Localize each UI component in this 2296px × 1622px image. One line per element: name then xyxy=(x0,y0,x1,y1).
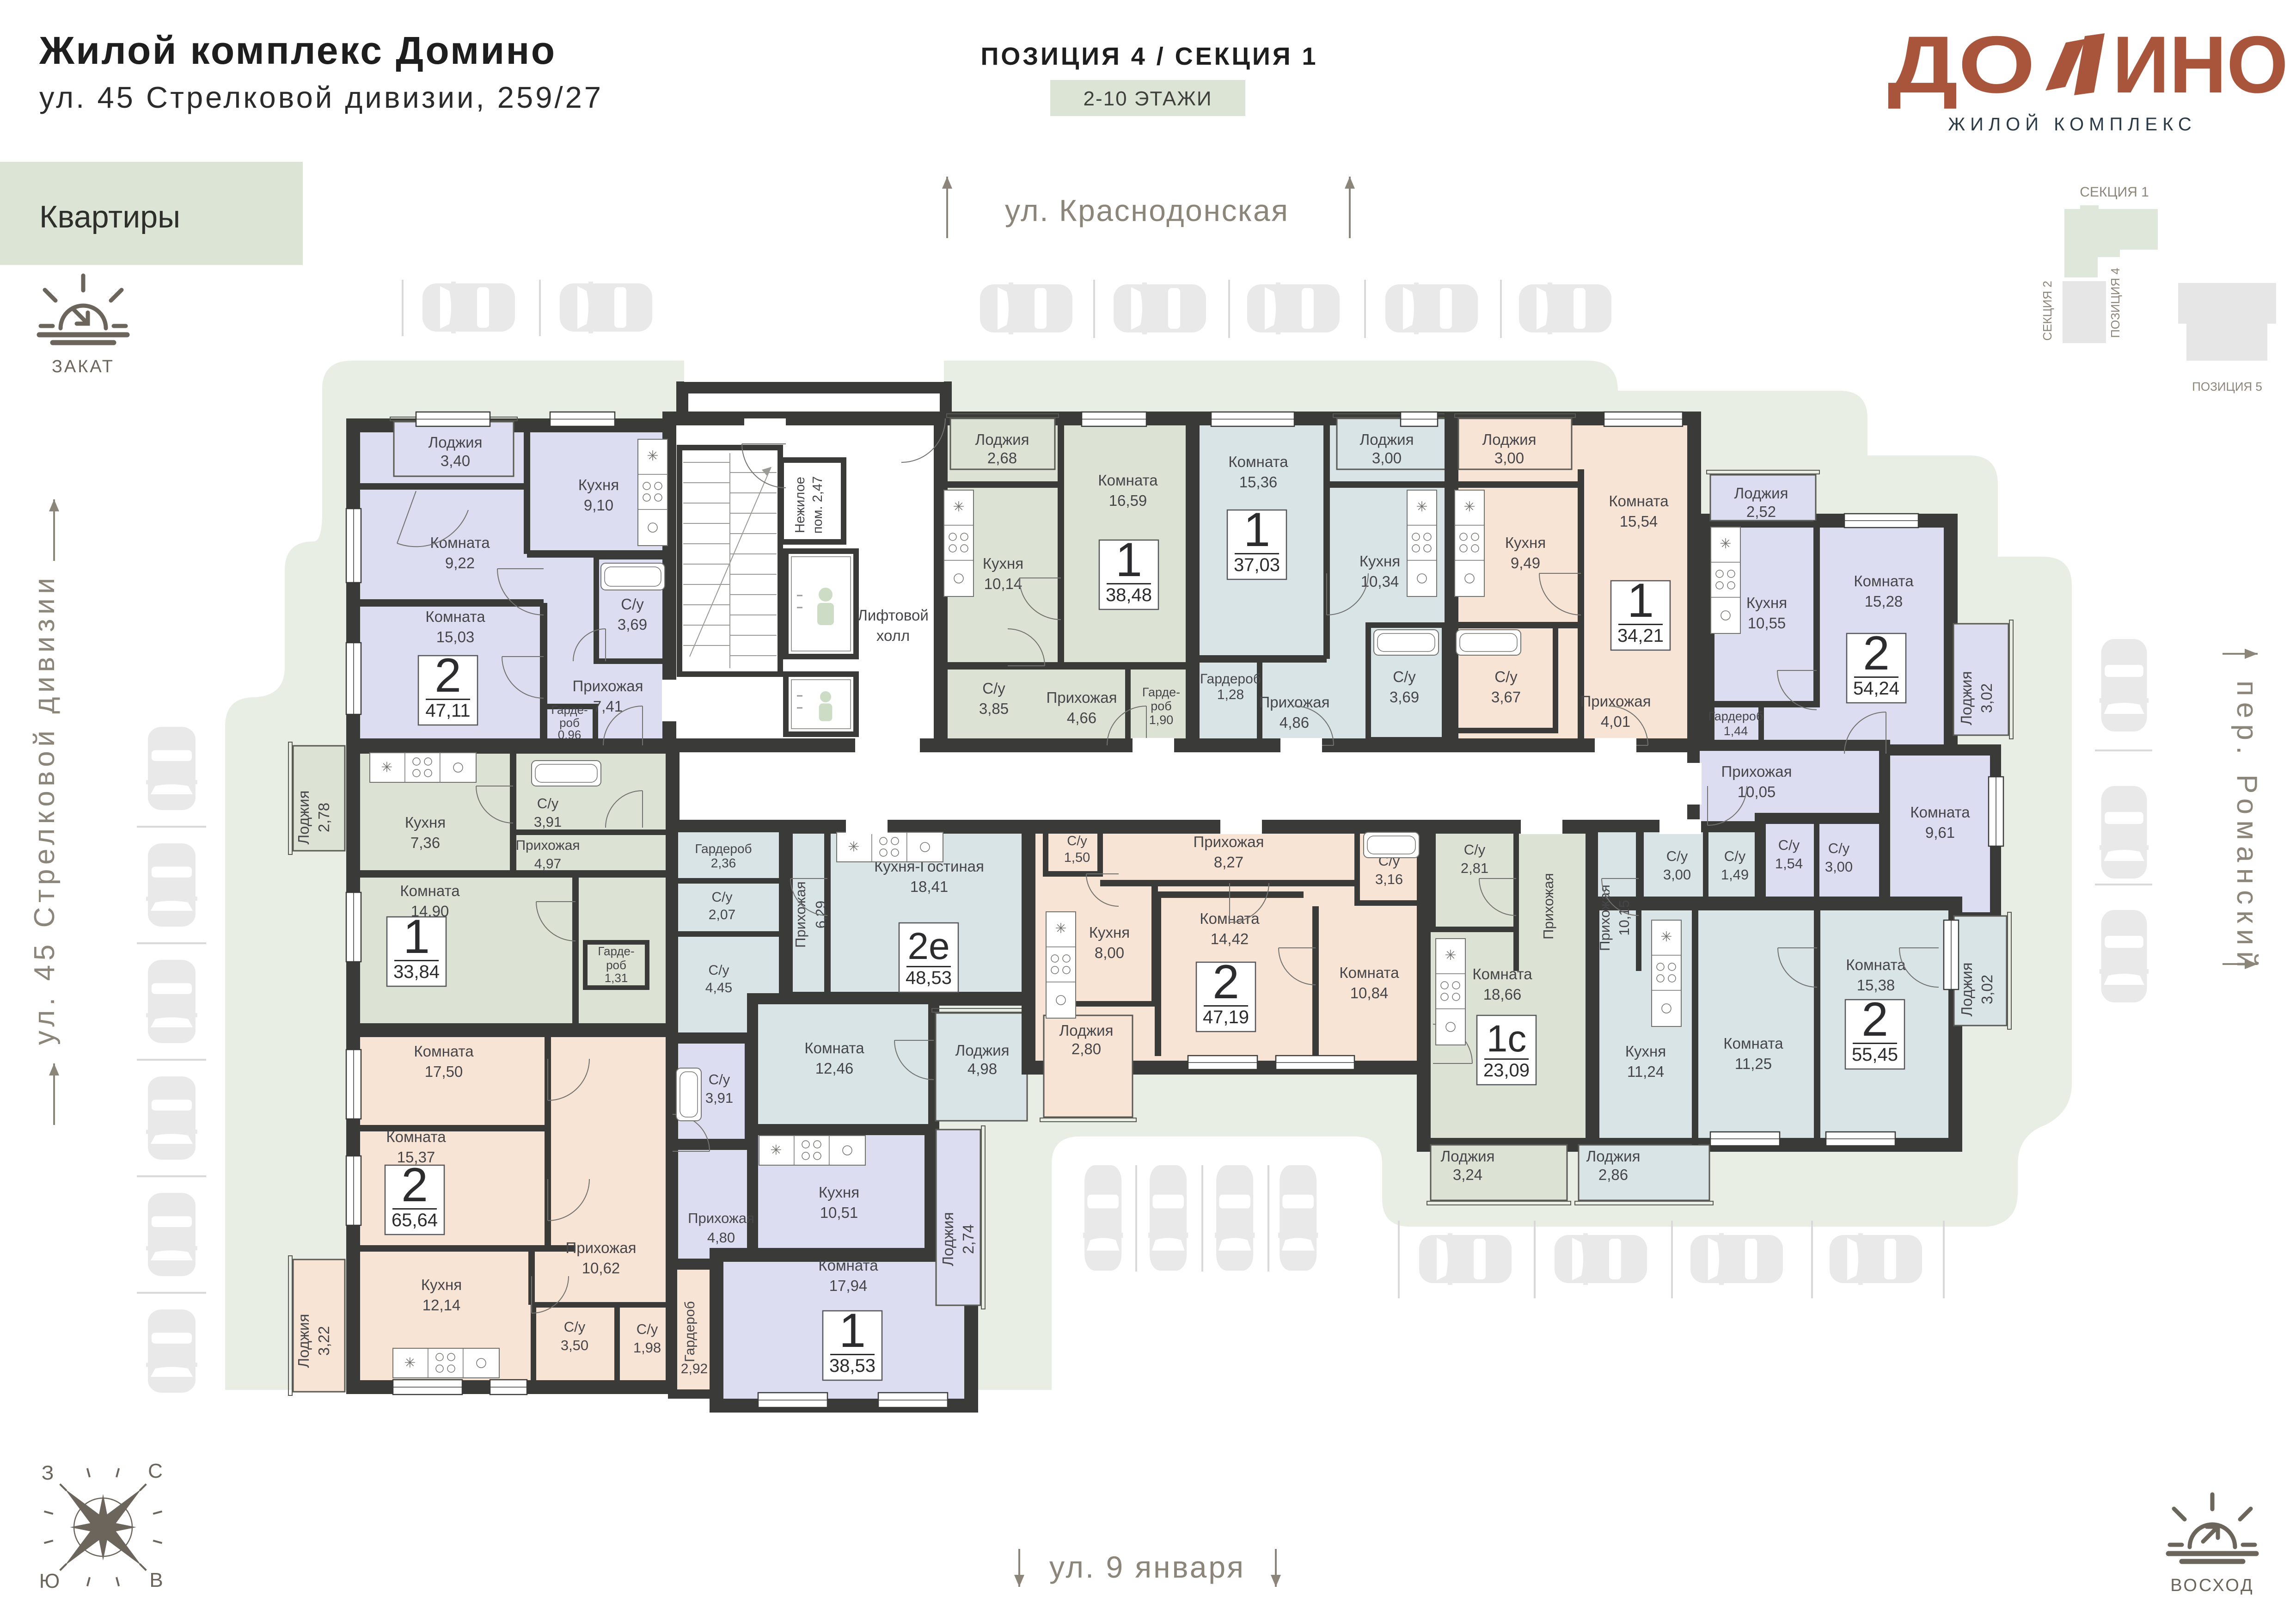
svg-text:✳: ✳ xyxy=(381,760,392,775)
svg-text:Кухня: Кухня xyxy=(1089,924,1130,941)
svg-text:3,02: 3,02 xyxy=(1978,683,1995,713)
svg-text:3,85: 3,85 xyxy=(979,700,1009,717)
svg-text:8,00: 8,00 xyxy=(1095,944,1124,961)
svg-text:10,34: 10,34 xyxy=(1361,573,1399,590)
svg-text:ДО: ДО xyxy=(1887,20,2035,110)
svg-text:2,86: 2,86 xyxy=(1598,1166,1628,1183)
svg-text:11,25: 11,25 xyxy=(1735,1055,1772,1072)
svg-text:10,62: 10,62 xyxy=(582,1260,620,1277)
svg-text:4,80: 4,80 xyxy=(707,1229,735,1246)
svg-text:65,64: 65,64 xyxy=(392,1210,438,1230)
svg-text:17,50: 17,50 xyxy=(425,1063,463,1080)
svg-text:Прихожая: Прихожая xyxy=(1580,693,1651,710)
svg-text:23,09: 23,09 xyxy=(1483,1060,1530,1081)
svg-text:2,07: 2,07 xyxy=(709,907,735,922)
svg-text:Жилой комплекс Домино: Жилой комплекс Домино xyxy=(39,29,555,72)
svg-text:Комната: Комната xyxy=(425,608,485,625)
svg-text:Прихожая: Прихожая xyxy=(1597,885,1613,951)
svg-text:1,50: 1,50 xyxy=(1064,850,1090,865)
svg-text:3,00: 3,00 xyxy=(1372,449,1402,467)
svg-text:12,14: 12,14 xyxy=(422,1296,461,1314)
svg-text:С/у: С/у xyxy=(1494,668,1518,685)
svg-text:Гардероб: Гардероб xyxy=(695,842,752,856)
svg-text:✳: ✳ xyxy=(1720,536,1731,552)
svg-text:✳: ✳ xyxy=(1055,921,1066,936)
svg-text:Комната: Комната xyxy=(1609,492,1669,510)
svg-text:10,15: 10,15 xyxy=(1616,900,1632,936)
svg-text:2,36: 2,36 xyxy=(711,856,736,870)
svg-text:ПОЗИЦИЯ 4: ПОЗИЦИЯ 4 xyxy=(2108,268,2122,338)
svg-text:С/у: С/у xyxy=(1393,668,1416,685)
svg-text:Комната: Комната xyxy=(386,1128,446,1145)
svg-text:3,69: 3,69 xyxy=(618,616,647,633)
svg-text:С/у: С/у xyxy=(1464,842,1486,858)
svg-text:3,02: 3,02 xyxy=(1978,975,1996,1004)
svg-text:2,92: 2,92 xyxy=(681,1361,708,1376)
svg-text:✳: ✳ xyxy=(1660,929,1672,945)
svg-text:ул. Краснодонская: ул. Краснодонская xyxy=(1005,193,1288,227)
svg-text:ул. 45 Стрелковой дивизии: ул. 45 Стрелковой дивизии xyxy=(29,578,61,1045)
svg-text:3,69: 3,69 xyxy=(1390,688,1419,706)
svg-text:СЕКЦИЯ 2: СЕКЦИЯ 2 xyxy=(2040,281,2054,341)
svg-text:С/у: С/у xyxy=(1778,837,1800,853)
svg-text:С/у: С/у xyxy=(712,890,733,905)
svg-text:2: 2 xyxy=(435,649,461,702)
svg-text:3,00: 3,00 xyxy=(1494,449,1524,467)
svg-text:2: 2 xyxy=(1861,993,1888,1046)
svg-text:Лоджия: Лоджия xyxy=(1734,485,1788,502)
svg-text:Лоджия: Лоджия xyxy=(1059,1022,1114,1039)
svg-text:33,84: 33,84 xyxy=(393,962,440,982)
svg-text:9,22: 9,22 xyxy=(445,554,475,571)
svg-text:7,36: 7,36 xyxy=(410,834,440,851)
svg-text:18,41: 18,41 xyxy=(910,878,949,895)
svg-text:Лоджия: Лоджия xyxy=(295,1314,312,1368)
svg-text:0,96: 0,96 xyxy=(558,728,582,742)
svg-text:Лифтовой: Лифтовой xyxy=(857,607,929,624)
svg-text:1: 1 xyxy=(403,910,430,964)
svg-text:38,53: 38,53 xyxy=(829,1356,876,1376)
svg-text:ЖИЛОЙ КОМПЛЕКС: ЖИЛОЙ КОМПЛЕКС xyxy=(1948,113,2197,135)
svg-text:4,98: 4,98 xyxy=(967,1060,997,1077)
svg-text:ВОСХОД: ВОСХОД xyxy=(2170,1576,2254,1595)
svg-text:Комната: Комната xyxy=(1098,472,1158,489)
svg-text:2,74: 2,74 xyxy=(960,1224,977,1254)
svg-text:14,42: 14,42 xyxy=(1211,930,1249,947)
svg-text:3,40: 3,40 xyxy=(441,452,470,469)
svg-text:Прихожая: Прихожая xyxy=(792,881,808,948)
svg-text:Прихожая: Прихожая xyxy=(1194,833,1264,850)
svg-text:Гардероб: Гардероб xyxy=(1708,709,1763,723)
svg-text:1,49: 1,49 xyxy=(1721,866,1749,883)
svg-text:Кухня: Кухня xyxy=(1359,553,1400,570)
svg-text:ЗАКАТ: ЗАКАТ xyxy=(52,357,115,376)
svg-text:✳: ✳ xyxy=(770,1143,782,1158)
svg-text:ПОЗИЦИЯ 4 / СЕКЦИЯ 1: ПОЗИЦИЯ 4 / СЕКЦИЯ 1 xyxy=(981,43,1316,70)
svg-text:11,24: 11,24 xyxy=(1627,1063,1664,1080)
svg-text:3,24: 3,24 xyxy=(1453,1166,1482,1183)
svg-text:ПОЗИЦИЯ 5: ПОЗИЦИЯ 5 xyxy=(2192,380,2262,393)
svg-text:10,84: 10,84 xyxy=(1350,984,1389,1001)
svg-text:2,81: 2,81 xyxy=(1461,860,1488,876)
svg-text:Квартиры: Квартиры xyxy=(39,199,180,234)
svg-text:Лоджия: Лоджия xyxy=(429,434,483,451)
svg-text:Лоджия: Лоджия xyxy=(295,791,312,845)
svg-text:С/у: С/у xyxy=(709,1071,730,1087)
svg-text:15,03: 15,03 xyxy=(436,628,475,645)
svg-text:Прихожая: Прихожая xyxy=(1721,763,1792,780)
svg-text:С/у: С/у xyxy=(1724,848,1746,864)
svg-text:4,66: 4,66 xyxy=(1067,709,1096,726)
svg-text:10,51: 10,51 xyxy=(820,1204,858,1221)
svg-text:1,44: 1,44 xyxy=(1724,724,1748,738)
svg-text:37,03: 37,03 xyxy=(1234,555,1280,575)
svg-text:1с: 1с xyxy=(1487,1018,1527,1060)
svg-text:55,45: 55,45 xyxy=(1852,1044,1898,1065)
svg-text:Кухня: Кухня xyxy=(819,1184,859,1201)
svg-text:✳: ✳ xyxy=(1416,499,1427,515)
svg-text:8,27: 8,27 xyxy=(1214,854,1243,871)
svg-text:Кухня: Кухня xyxy=(1505,534,1546,551)
svg-text:Комната: Комната xyxy=(414,1043,474,1060)
svg-text:Лоджия: Лоджия xyxy=(955,1042,1010,1059)
svg-text:2: 2 xyxy=(401,1158,428,1212)
svg-text:2: 2 xyxy=(1863,627,1890,680)
svg-text:Кухня: Кухня xyxy=(983,555,1023,572)
svg-text:34,21: 34,21 xyxy=(1617,626,1664,646)
svg-text:С/у: С/у xyxy=(537,795,559,811)
svg-text:3,67: 3,67 xyxy=(1491,688,1521,706)
svg-text:С/у: С/у xyxy=(1666,848,1688,864)
svg-text:✳: ✳ xyxy=(1463,499,1475,515)
svg-text:ИНО: ИНО xyxy=(2112,20,2288,110)
svg-text:3,91: 3,91 xyxy=(534,814,562,830)
svg-text:С/у: С/у xyxy=(621,596,644,613)
svg-text:2,68: 2,68 xyxy=(987,449,1017,467)
svg-text:Прихожая: Прихожая xyxy=(573,677,643,694)
svg-text:Комната: Комната xyxy=(1854,572,1914,590)
svg-text:2: 2 xyxy=(1212,955,1239,1009)
svg-text:16,59: 16,59 xyxy=(1109,492,1147,509)
svg-text:4,01: 4,01 xyxy=(1601,713,1630,730)
svg-text:1,98: 1,98 xyxy=(633,1339,661,1356)
svg-text:Гарде-: Гарде- xyxy=(551,703,588,717)
svg-text:10,14: 10,14 xyxy=(984,575,1022,592)
svg-text:10,55: 10,55 xyxy=(1748,614,1786,632)
svg-text:Лоджия: Лоджия xyxy=(939,1212,956,1266)
svg-text:18,66: 18,66 xyxy=(1483,986,1522,1003)
svg-text:Комната: Комната xyxy=(1472,965,1532,983)
svg-text:4,97: 4,97 xyxy=(534,856,561,872)
svg-text:1,90: 1,90 xyxy=(1149,713,1174,727)
svg-text:Прихожая: Прихожая xyxy=(688,1210,754,1226)
svg-text:Ю: Ю xyxy=(39,1570,60,1592)
svg-text:ул. 45 Стрелковой дивизии, 259: ул. 45 Стрелковой дивизии, 259/27 xyxy=(39,80,601,114)
svg-text:2,52: 2,52 xyxy=(1746,503,1776,520)
svg-text:С/у: С/у xyxy=(637,1321,658,1337)
svg-text:С/у: С/у xyxy=(709,963,729,978)
svg-text:С/у: С/у xyxy=(564,1319,586,1335)
svg-text:10,05: 10,05 xyxy=(1738,783,1776,800)
svg-text:С/у: С/у xyxy=(1067,834,1087,848)
svg-text:1: 1 xyxy=(1115,533,1142,587)
svg-text:Прихожая: Прихожая xyxy=(515,838,580,853)
svg-text:Комната: Комната xyxy=(1339,964,1399,981)
svg-text:В: В xyxy=(149,1569,163,1591)
svg-text:З: З xyxy=(42,1462,54,1484)
svg-text:Лоджия: Лоджия xyxy=(1958,963,1975,1017)
svg-text:3,22: 3,22 xyxy=(315,1326,332,1356)
svg-text:С/у: С/у xyxy=(982,680,1005,697)
svg-text:Гарде-: Гарде- xyxy=(598,944,634,958)
svg-text:3,91: 3,91 xyxy=(705,1090,733,1106)
svg-text:Комната: Комната xyxy=(818,1257,878,1274)
svg-text:2,80: 2,80 xyxy=(1071,1040,1101,1057)
svg-text:пом. 2,47: пом. 2,47 xyxy=(810,476,825,534)
svg-text:54,24: 54,24 xyxy=(1853,678,1899,699)
svg-text:1,28: 1,28 xyxy=(1217,687,1244,702)
svg-text:7,41: 7,41 xyxy=(593,698,623,715)
svg-text:Кухня: Кухня xyxy=(578,476,619,493)
svg-text:9,10: 9,10 xyxy=(584,497,613,514)
svg-text:Комната: Комната xyxy=(804,1039,864,1057)
svg-text:2е: 2е xyxy=(907,925,949,967)
svg-text:Прихожая: Прихожая xyxy=(1047,689,1117,706)
svg-text:роб: роб xyxy=(606,958,626,972)
svg-text:38,48: 38,48 xyxy=(1106,585,1152,605)
svg-text:9,61: 9,61 xyxy=(1925,824,1955,841)
svg-text:3,00: 3,00 xyxy=(1825,859,1853,875)
svg-text:Нежилое: Нежилое xyxy=(793,477,808,533)
svg-text:17,94: 17,94 xyxy=(829,1277,868,1294)
svg-text:Лоджия: Лоджия xyxy=(1586,1148,1641,1165)
svg-text:СЕКЦИЯ 1: СЕКЦИЯ 1 xyxy=(2080,184,2149,200)
svg-text:Лоджия: Лоджия xyxy=(1360,431,1414,448)
svg-text:Комната: Комната xyxy=(1723,1035,1783,1052)
svg-text:Лоджия: Лоджия xyxy=(1958,671,1975,725)
svg-text:Кухня: Кухня xyxy=(405,814,446,831)
svg-text:✳: ✳ xyxy=(848,840,859,855)
svg-text:12,46: 12,46 xyxy=(815,1060,854,1077)
svg-text:Лоджия: Лоджия xyxy=(1441,1148,1495,1165)
svg-text:роб: роб xyxy=(1151,699,1172,713)
svg-text:3,00: 3,00 xyxy=(1663,866,1691,883)
svg-text:Кухня: Кухня xyxy=(421,1276,462,1293)
svg-text:15,54: 15,54 xyxy=(1620,513,1658,530)
svg-text:Гарде-: Гарде- xyxy=(1142,685,1180,699)
svg-text:48,53: 48,53 xyxy=(906,968,952,988)
svg-text:2,78: 2,78 xyxy=(315,803,332,832)
svg-text:1: 1 xyxy=(839,1304,866,1358)
svg-text:С: С xyxy=(148,1460,163,1482)
svg-text:Комната: Комната xyxy=(430,534,490,551)
svg-text:15,38: 15,38 xyxy=(1857,977,1895,994)
svg-text:1,31: 1,31 xyxy=(605,971,628,985)
svg-text:Комната: Комната xyxy=(1910,804,1970,821)
svg-text:9,49: 9,49 xyxy=(1511,554,1540,571)
svg-text:Комната: Комната xyxy=(1228,453,1288,470)
svg-text:47,19: 47,19 xyxy=(1203,1007,1249,1027)
svg-text:✳: ✳ xyxy=(953,499,964,515)
svg-text:ул. 9 января: ул. 9 января xyxy=(1049,1550,1243,1584)
svg-text:холл: холл xyxy=(876,627,910,644)
svg-text:4,45: 4,45 xyxy=(705,980,732,995)
svg-text:3,16: 3,16 xyxy=(1375,871,1403,887)
svg-text:✳: ✳ xyxy=(647,449,658,464)
svg-text:Комната: Комната xyxy=(400,882,460,899)
svg-text:4,86: 4,86 xyxy=(1280,714,1309,731)
svg-text:Прихожая: Прихожая xyxy=(566,1239,637,1256)
svg-text:С/у: С/у xyxy=(1828,840,1850,856)
svg-text:3,50: 3,50 xyxy=(561,1337,588,1353)
svg-text:47,11: 47,11 xyxy=(425,700,470,721)
svg-text:Гардероб: Гардероб xyxy=(682,1301,698,1362)
svg-text:Прихожая: Прихожая xyxy=(1259,694,1330,711)
svg-text:✳: ✳ xyxy=(1445,948,1456,963)
svg-text:1: 1 xyxy=(1243,503,1270,557)
svg-text:1,54: 1,54 xyxy=(1775,855,1803,872)
svg-text:Кухня: Кухня xyxy=(1746,594,1787,611)
svg-text:Лоджия: Лоджия xyxy=(975,431,1029,448)
svg-text:15,28: 15,28 xyxy=(1865,593,1903,610)
svg-text:Гардероб: Гардероб xyxy=(1200,671,1261,687)
svg-text:Лоджия: Лоджия xyxy=(1482,431,1537,448)
svg-text:Комната: Комната xyxy=(1846,956,1906,973)
svg-text:1: 1 xyxy=(1627,574,1654,627)
svg-text:✳: ✳ xyxy=(404,1356,416,1371)
svg-text:Прихожая: Прихожая xyxy=(1540,873,1556,940)
svg-text:2-10 ЭТАЖИ: 2-10 ЭТАЖИ xyxy=(1084,87,1212,110)
svg-text:Кухня: Кухня xyxy=(1625,1043,1666,1060)
svg-text:15,36: 15,36 xyxy=(1239,473,1278,491)
